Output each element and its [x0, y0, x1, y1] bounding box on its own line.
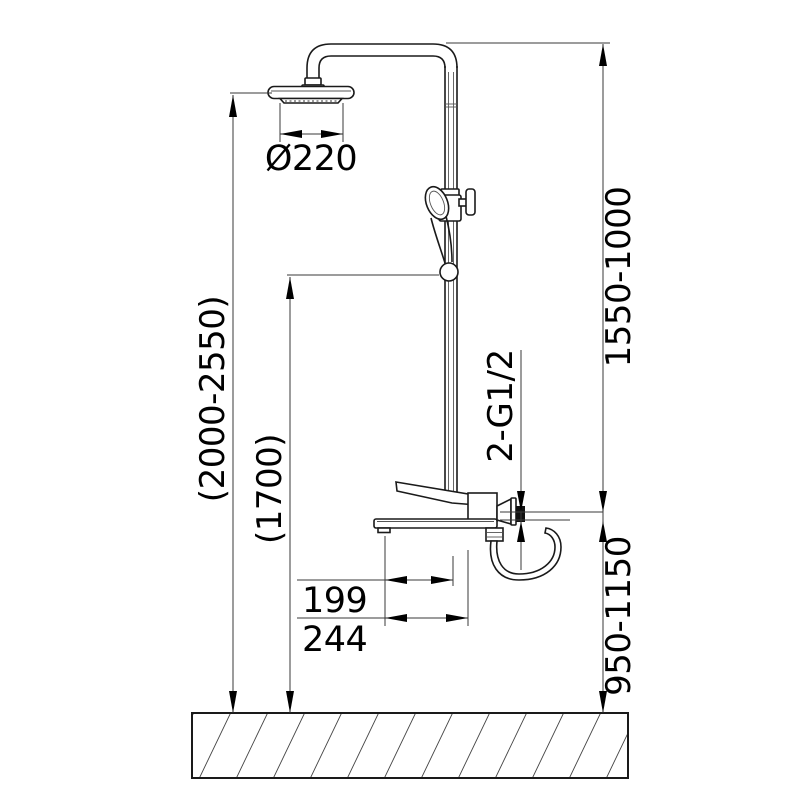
label-lower-section: 950-1150: [599, 536, 639, 696]
shower-system-diagram: Ø220 (2000-2550) (1700) 1550-1000 2-G1/2…: [0, 0, 800, 800]
floor-hatching: [160, 708, 677, 783]
shower-fixture: [268, 44, 561, 580]
label-spout-reach-inner: 199: [302, 581, 367, 621]
label-overall-height: (2000-2550): [193, 296, 233, 502]
label-head-diameter: Ø220: [265, 139, 357, 179]
hose-ball-joint: [440, 263, 458, 281]
label-upper-section: 1550-1000: [599, 187, 639, 368]
riser-pipe: [445, 66, 457, 498]
mixer-body: [468, 493, 497, 521]
hose-nut: [486, 528, 503, 541]
hand-shower-handle: [431, 218, 445, 263]
spout-shelf: [374, 519, 497, 528]
dim-overall-height: [229, 93, 272, 713]
shower-arm: [307, 44, 457, 80]
label-spout-reach-outer: 244: [302, 620, 367, 660]
label-connection-thread: 2-G1/2: [481, 349, 521, 462]
floor-slab: [160, 708, 677, 783]
label-hand-shower-height: (1700): [250, 434, 290, 544]
technical-drawing-page: Ø220 (2000-2550) (1700) 1550-1000 2-G1/2…: [0, 0, 800, 800]
floor-outline: [192, 713, 628, 778]
spout-nozzle: [378, 528, 390, 533]
dim-head-diameter: [280, 103, 343, 142]
rain-shower-head: [268, 87, 354, 104]
dimension-labels: Ø220 (2000-2550) (1700) 1550-1000 2-G1/2…: [193, 139, 639, 696]
dim-right-column: [446, 43, 610, 713]
